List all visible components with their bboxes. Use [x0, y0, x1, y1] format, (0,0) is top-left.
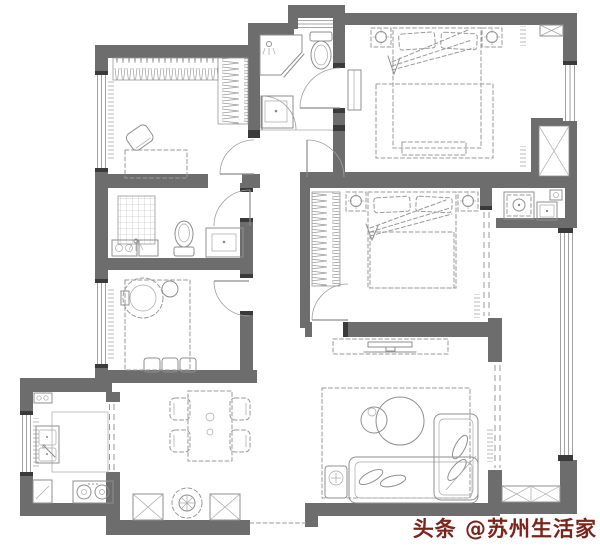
pillow [441, 32, 478, 50]
rug [322, 388, 470, 498]
floor-plan-image: 头条 @苏州生活家 [0, 0, 600, 547]
tv-icon [364, 342, 416, 352]
storage-cabinet-icon [502, 486, 560, 502]
shower-icon [260, 35, 302, 75]
rug [376, 84, 493, 158]
window-master-right [563, 65, 577, 121]
window-balcony-right [558, 228, 573, 461]
counter [52, 412, 108, 472]
door-bedroom-2 [312, 284, 348, 320]
toilet-icon [310, 32, 332, 69]
door-lounge-room [214, 281, 249, 316]
vanity-sink-icon [261, 96, 293, 128]
bathroom-left [112, 196, 243, 257]
table-decor [206, 413, 214, 421]
side-table-icon [162, 281, 178, 297]
bed-icon [393, 28, 481, 148]
sliding-door-living-balcony [495, 365, 500, 468]
vent-box-icon [540, 25, 563, 36]
coffee-table-icon [376, 397, 424, 445]
blanket [370, 232, 454, 288]
corner-cabinet-icon [33, 480, 52, 503]
curtain-marks [520, 26, 526, 46]
pillow [445, 457, 469, 483]
kitchen-sink-icon [36, 426, 59, 463]
sofa-icon [349, 414, 478, 503]
plant-icon [172, 488, 202, 518]
sliding-door-kitchen [110, 404, 115, 470]
nightstand-right [458, 192, 478, 211]
rug [125, 280, 190, 370]
watermark: 头条 @苏州生活家 [413, 513, 597, 543]
bed-icon [368, 192, 456, 288]
shoe-cabinet-icon [210, 494, 240, 520]
floor-plan-svg [0, 0, 600, 547]
water-heater-icon [550, 190, 562, 200]
bathroom-top [260, 32, 332, 128]
balcony [502, 486, 560, 502]
master-bedroom [348, 25, 563, 168]
window-kitchen-left [20, 411, 33, 476]
living-room [322, 339, 493, 503]
table-decor [207, 429, 213, 435]
chair-icon [124, 123, 155, 152]
door-closet [220, 140, 254, 174]
entry [133, 488, 240, 520]
coffee-table-small-icon [361, 407, 387, 433]
toilet-icon [174, 221, 194, 256]
elevator-shaft [539, 126, 569, 176]
pillow [374, 196, 411, 213]
curtain-marks [520, 146, 526, 168]
shoe-cabinet-icon [133, 494, 163, 520]
dining-table-icon [188, 391, 232, 461]
shower-grid-icon [118, 196, 155, 244]
lounge-room [108, 278, 196, 372]
window-closet-left [95, 71, 108, 172]
window-lounge-left [95, 279, 108, 368]
window-bathroom-top [298, 18, 333, 29]
nightstand-left [371, 28, 391, 47]
round-chair-icon [121, 278, 163, 318]
door-master-bedroom [300, 68, 340, 108]
desk-icon [125, 150, 187, 178]
shower-cabin-icon [504, 192, 534, 219]
sliding-window-bedroom2 [484, 212, 489, 316]
curtain-marks [487, 428, 493, 462]
pillow [398, 32, 435, 50]
wardrobe-icon [113, 58, 218, 80]
bathroom-right [504, 190, 562, 220]
pillow [379, 473, 407, 489]
dining-area [170, 391, 250, 461]
dresser-icon [348, 70, 361, 110]
side-table-plant-icon [325, 466, 347, 498]
wardrobe-side-icon [218, 58, 248, 124]
dining-chairs [170, 398, 250, 452]
sink-icon [537, 202, 557, 220]
kitchen [33, 393, 113, 503]
curtain-marks [108, 288, 114, 360]
nightstand-right [482, 28, 502, 47]
shower-head-icon [263, 42, 275, 56]
bedroom-2 [312, 192, 480, 318]
curtain-marks [474, 294, 480, 318]
nightstand-left [346, 192, 366, 211]
curtain-marks [108, 80, 114, 160]
vanity-sink-icon [206, 228, 243, 257]
walk-in-closet [108, 58, 248, 178]
small-appliance-icon [34, 393, 52, 403]
wardrobe-icon [312, 192, 340, 286]
